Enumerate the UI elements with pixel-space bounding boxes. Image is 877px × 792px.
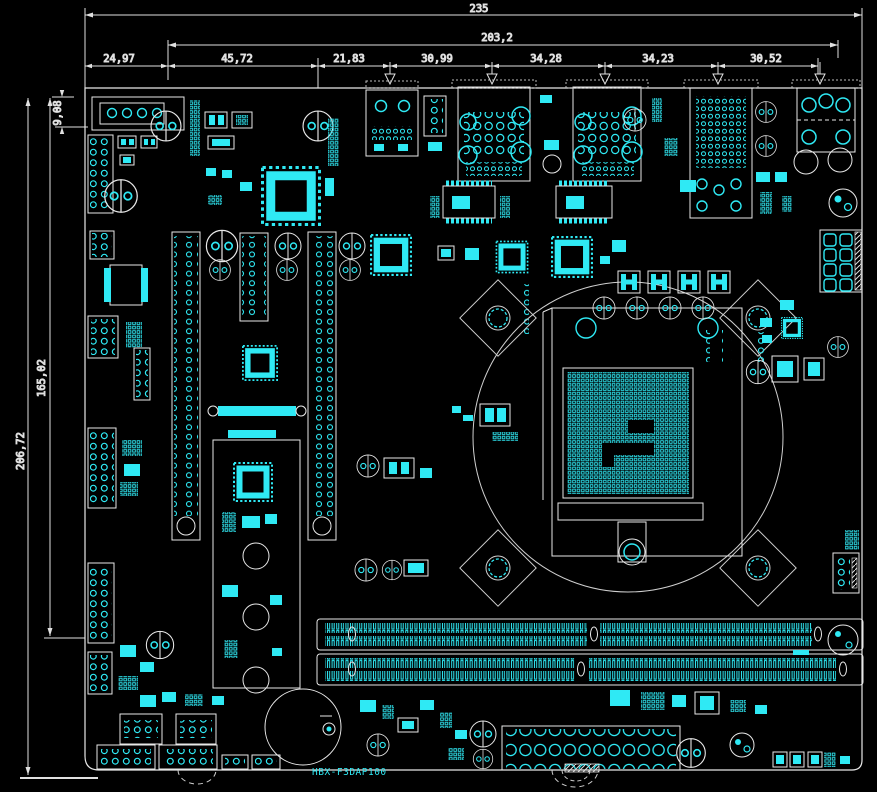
socket-retention-bar — [558, 503, 703, 520]
vga-header — [424, 96, 446, 151]
dim-seg-4: 34,28 — [530, 53, 562, 65]
mid-chip-band — [371, 183, 626, 334]
dip-chip — [104, 265, 148, 305]
cpu-socket-zone — [355, 271, 824, 606]
dim-seg-1: 45,72 — [221, 53, 253, 65]
ps2-connector — [366, 90, 418, 156]
left-expansion-area — [88, 230, 365, 694]
soic-chip-1 — [443, 183, 495, 221]
short-header-slot — [240, 233, 268, 321]
clock-gen-chip — [371, 235, 411, 275]
right-small-cluster — [760, 300, 848, 357]
usb-stack-1 — [458, 87, 531, 181]
dim-total-width: 235 — [470, 3, 489, 15]
vrm-chokes — [618, 271, 730, 293]
bottom-right-headers — [773, 752, 850, 767]
cooler-mount-3 — [460, 530, 536, 606]
cap-kb — [151, 111, 181, 141]
pci-slot-2 — [308, 232, 336, 540]
atx12v-connector — [820, 230, 862, 292]
soic-chip-2 — [556, 183, 612, 221]
dim-seg-5: 34,23 — [642, 53, 674, 65]
dim-total-height: 206,72 — [15, 432, 27, 470]
connector-pointer-arrows — [385, 62, 825, 84]
small-smd-cluster-topleft — [118, 112, 252, 205]
dimm-slots — [317, 619, 863, 685]
mini-slot-bar — [208, 406, 306, 438]
cooler-mount-4 — [720, 530, 796, 606]
left-edge-header — [88, 135, 113, 213]
audio-connector — [797, 88, 855, 152]
coin-battery — [265, 689, 341, 765]
mid-usb-parts — [540, 95, 561, 173]
pre-atx-parts — [360, 700, 467, 760]
pin-strip — [190, 100, 200, 156]
cap-atx-right — [677, 739, 706, 768]
pci-slot-1 — [172, 232, 200, 540]
lan-phy-chip — [552, 237, 592, 277]
pcb-cad-drawing: 235 203,2 24,97 45,72 21,83 30,99 34,28 … — [0, 0, 877, 792]
front-panel-headers — [97, 692, 280, 769]
lan-connector — [690, 88, 752, 218]
dimm-slot-1 — [317, 619, 863, 655]
module-outline — [213, 440, 300, 693]
drawing-svg: 235 203,2 24,97 45,72 21,83 30,99 34,28 … — [0, 0, 877, 792]
right-edge-header — [833, 530, 859, 593]
dim-io-span: 203,2 — [481, 32, 513, 44]
left-of-socket-parts — [355, 404, 518, 581]
dim-seg-3: 30,99 — [421, 53, 453, 65]
pin-strip — [328, 118, 339, 166]
board-name-label: HBX-F3DAP100 — [312, 767, 387, 778]
io-chip-small — [496, 241, 527, 272]
super-io-chip — [263, 168, 335, 225]
dim-seg-6: 30,52 — [750, 53, 782, 65]
right-edge-area — [760, 230, 862, 593]
cpu-socket — [543, 308, 742, 565]
dim-seg-2: 21,83 — [333, 53, 365, 65]
cap-atx-left-1 — [470, 721, 496, 747]
dim-offset-top: 9,08 — [52, 100, 64, 125]
cap-atx-left-2 — [473, 749, 493, 769]
atx24-connector — [502, 726, 680, 770]
dimm-slot-2 — [317, 654, 863, 685]
dim-inner-height: 165,02 — [36, 359, 48, 397]
cap-topleft — [105, 180, 138, 213]
dim-seg-0: 24,97 — [103, 53, 135, 65]
rear-io-connectors — [88, 87, 857, 225]
bottom-edge-area — [97, 689, 850, 787]
left-edge-headers — [88, 231, 174, 694]
usb-stack-2 — [573, 87, 642, 181]
keyboard-connector — [92, 97, 184, 130]
flash-chip — [243, 346, 277, 380]
